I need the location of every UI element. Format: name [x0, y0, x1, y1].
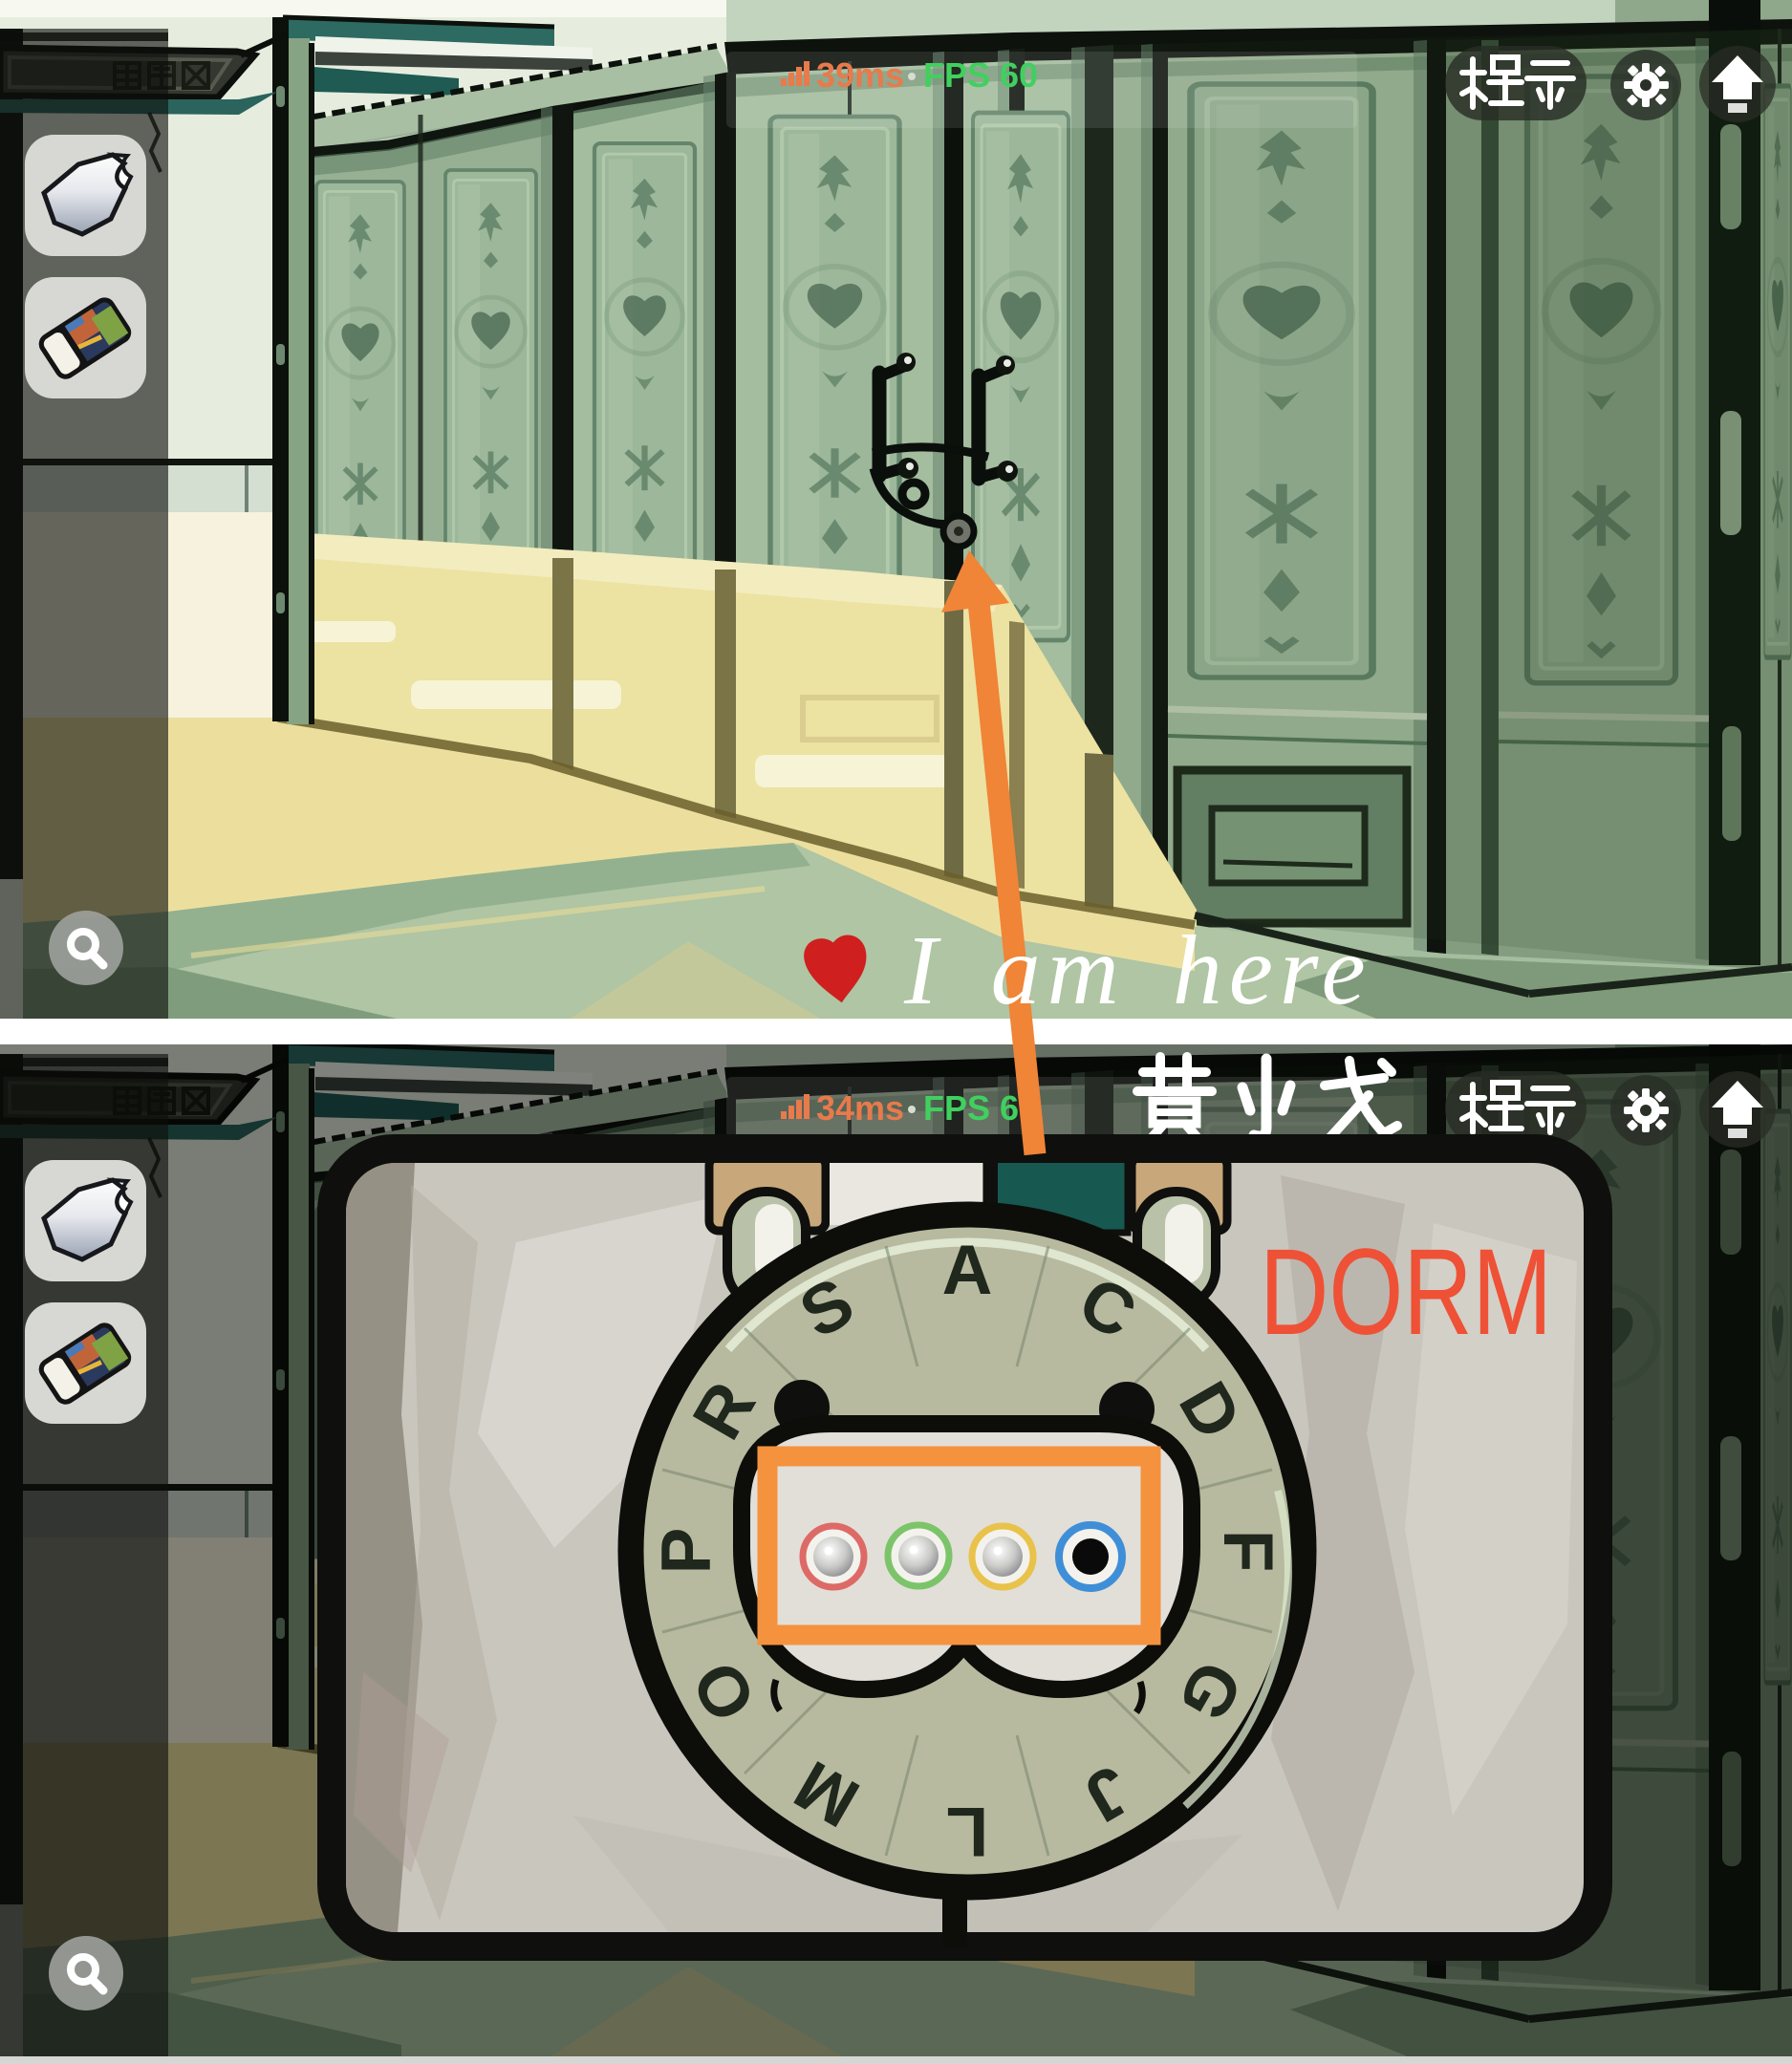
svg-text:FPS 60: FPS 60 — [923, 55, 1038, 95]
svg-text:A: A — [942, 1232, 993, 1309]
svg-text:F: F — [1209, 1530, 1286, 1573]
svg-text:DORM: DORM — [1260, 1224, 1552, 1361]
svg-text:39ms: 39ms — [816, 55, 904, 95]
svg-text:34ms: 34ms — [816, 1088, 904, 1128]
svg-text:I am here: I am here — [903, 915, 1372, 1025]
svg-text:L: L — [946, 1793, 989, 1870]
svg-text:P: P — [648, 1528, 725, 1575]
